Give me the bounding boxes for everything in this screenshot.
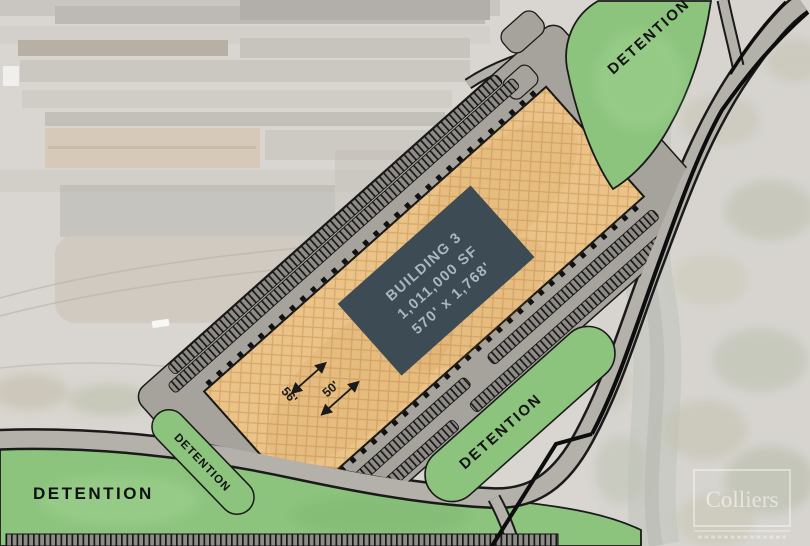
site-plan-screenshot: BUILDING 3 1,011,000 SF 570' x 1,768' 56… — [0, 0, 810, 546]
site-plan-canvas: BUILDING 3 1,011,000 SF 570' x 1,768' 56… — [0, 0, 810, 546]
colliers-logo-text: Colliers — [706, 487, 779, 512]
detention-label-southwest: DETENTION — [33, 484, 154, 503]
trailer-parking-strip-south — [6, 534, 558, 546]
